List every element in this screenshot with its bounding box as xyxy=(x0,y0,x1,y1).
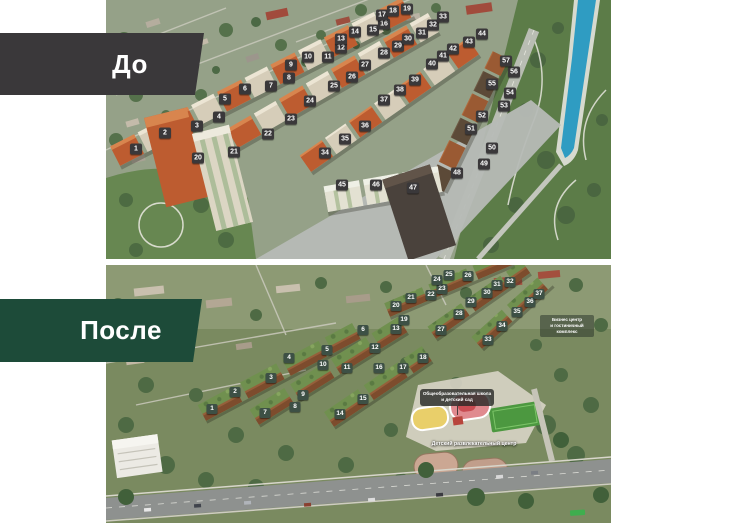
building-number-badge-28: 28 xyxy=(378,48,390,59)
building-number-badge-7: 7 xyxy=(260,408,271,418)
building-number-badge-34: 34 xyxy=(497,321,508,331)
building-number-badge-43: 43 xyxy=(463,37,475,48)
building-number-badge-5: 5 xyxy=(219,94,231,105)
building-number-badge-35: 35 xyxy=(339,134,351,145)
building-number-badge-20: 20 xyxy=(192,153,204,164)
building-number-badge-16: 16 xyxy=(374,363,385,373)
building-number-badge-11: 11 xyxy=(322,52,334,63)
building-number-badge-42: 42 xyxy=(447,44,459,55)
building-number-badge-7: 7 xyxy=(265,81,277,92)
building-number-badge-49: 49 xyxy=(478,159,490,170)
building-number-badge-45: 45 xyxy=(336,180,348,191)
building-number-badge-25: 25 xyxy=(328,81,340,92)
building-number-badge-33: 33 xyxy=(437,12,449,23)
building-number-badge-55: 55 xyxy=(486,79,498,90)
after-label: После xyxy=(80,315,162,346)
building-number-badge-9: 9 xyxy=(298,390,309,400)
building-number-badge-1: 1 xyxy=(207,404,218,414)
annotation-line: Детский развлекательный центр xyxy=(424,441,524,447)
building-number-badge-1: 1 xyxy=(130,144,142,155)
building-number-badge-56: 56 xyxy=(508,67,520,78)
building-number-badge-25: 25 xyxy=(444,270,455,280)
building-number-badge-27: 27 xyxy=(436,325,447,335)
building-number-badge-26: 26 xyxy=(463,271,474,281)
school-annotation-box: Общеобразовательная школаи детский сад xyxy=(420,389,494,406)
building-number-badge-38: 38 xyxy=(394,85,406,96)
building-number-badge-18: 18 xyxy=(418,353,429,363)
building-number-badge-17: 17 xyxy=(398,363,409,373)
building-number-badge-14: 14 xyxy=(335,409,346,419)
building-number-badge-39: 39 xyxy=(409,75,421,86)
building-number-badge-37: 37 xyxy=(378,95,390,106)
business-center-annotation: Бизнес центри гостиничныйкомплекс xyxy=(540,315,594,337)
before-label: До xyxy=(112,49,148,80)
building-number-badge-31: 31 xyxy=(492,280,503,290)
building-number-badge-32: 32 xyxy=(505,277,516,287)
building-number-badge-4: 4 xyxy=(284,353,295,363)
building-number-badge-3: 3 xyxy=(191,121,203,132)
building-number-badge-50: 50 xyxy=(486,143,498,154)
school-annotation-pointer xyxy=(457,406,458,415)
building-number-badge-21: 21 xyxy=(228,147,240,158)
building-number-badge-24: 24 xyxy=(432,275,443,285)
building-number-badge-37: 37 xyxy=(534,289,545,299)
building-number-badge-34: 34 xyxy=(319,148,331,159)
building-number-badge-22: 22 xyxy=(426,290,437,300)
building-number-badge-57: 57 xyxy=(500,56,512,67)
building-number-badge-15: 15 xyxy=(358,394,369,404)
annotation-line: и детский сад xyxy=(422,397,492,403)
building-number-badge-19: 19 xyxy=(399,315,410,325)
building-number-badge-2: 2 xyxy=(159,128,171,139)
building-number-badge-47: 47 xyxy=(407,183,419,194)
annotation-line: комплекс xyxy=(541,329,593,335)
building-number-badge-23: 23 xyxy=(437,284,448,294)
building-number-badge-35: 35 xyxy=(512,307,523,317)
building-number-badge-10: 10 xyxy=(302,52,314,63)
building-number-badge-26: 26 xyxy=(346,72,358,83)
building-number-badge-6: 6 xyxy=(358,325,369,335)
building-number-badge-24: 24 xyxy=(304,96,316,107)
building-number-badge-23: 23 xyxy=(285,114,297,125)
building-number-badge-6: 6 xyxy=(239,84,251,95)
building-number-badge-14: 14 xyxy=(349,27,361,38)
building-number-badge-20: 20 xyxy=(391,301,402,311)
building-number-badge-13: 13 xyxy=(391,324,402,334)
building-number-badge-53: 53 xyxy=(498,101,510,112)
building-number-badge-5: 5 xyxy=(322,345,333,355)
school-annotation: Общеобразовательная школаи детский сад xyxy=(420,389,494,415)
building-number-badge-21: 21 xyxy=(406,293,417,303)
before-banner: До xyxy=(0,33,204,95)
building-number-badge-11: 11 xyxy=(342,363,353,373)
building-number-badge-48: 48 xyxy=(451,168,463,179)
building-number-badge-27: 27 xyxy=(359,60,371,71)
building-number-badge-29: 29 xyxy=(466,297,477,307)
building-number-badge-4: 4 xyxy=(213,112,225,123)
building-number-badge-2: 2 xyxy=(230,387,241,397)
building-number-badge-28: 28 xyxy=(454,309,465,319)
after-banner: После xyxy=(0,299,202,362)
building-number-badge-54: 54 xyxy=(504,88,516,99)
building-number-badge-36: 36 xyxy=(359,121,371,132)
before-after-comparison-slide: 1234567891011121314151617181920212223242… xyxy=(0,0,740,523)
building-number-badge-18: 18 xyxy=(387,6,399,17)
building-number-badge-51: 51 xyxy=(465,124,477,135)
building-number-badge-3: 3 xyxy=(266,373,277,383)
building-number-badge-10: 10 xyxy=(318,360,329,370)
building-number-badge-30: 30 xyxy=(482,288,493,298)
building-number-badge-8: 8 xyxy=(283,73,295,84)
building-number-badge-8: 8 xyxy=(290,402,301,412)
building-number-badge-46: 46 xyxy=(370,180,382,191)
building-number-badge-22: 22 xyxy=(262,129,274,140)
building-number-badge-44: 44 xyxy=(476,29,488,40)
building-number-badge-12: 12 xyxy=(370,343,381,353)
building-number-badge-13: 13 xyxy=(335,34,347,45)
building-number-badge-30: 30 xyxy=(402,34,414,45)
building-number-badge-33: 33 xyxy=(483,335,494,345)
building-number-badge-52: 52 xyxy=(476,111,488,122)
kids-center-annotation: Детский развлекательный центр xyxy=(424,441,524,447)
building-number-badge-9: 9 xyxy=(285,60,297,71)
building-number-badge-19: 19 xyxy=(401,4,413,15)
